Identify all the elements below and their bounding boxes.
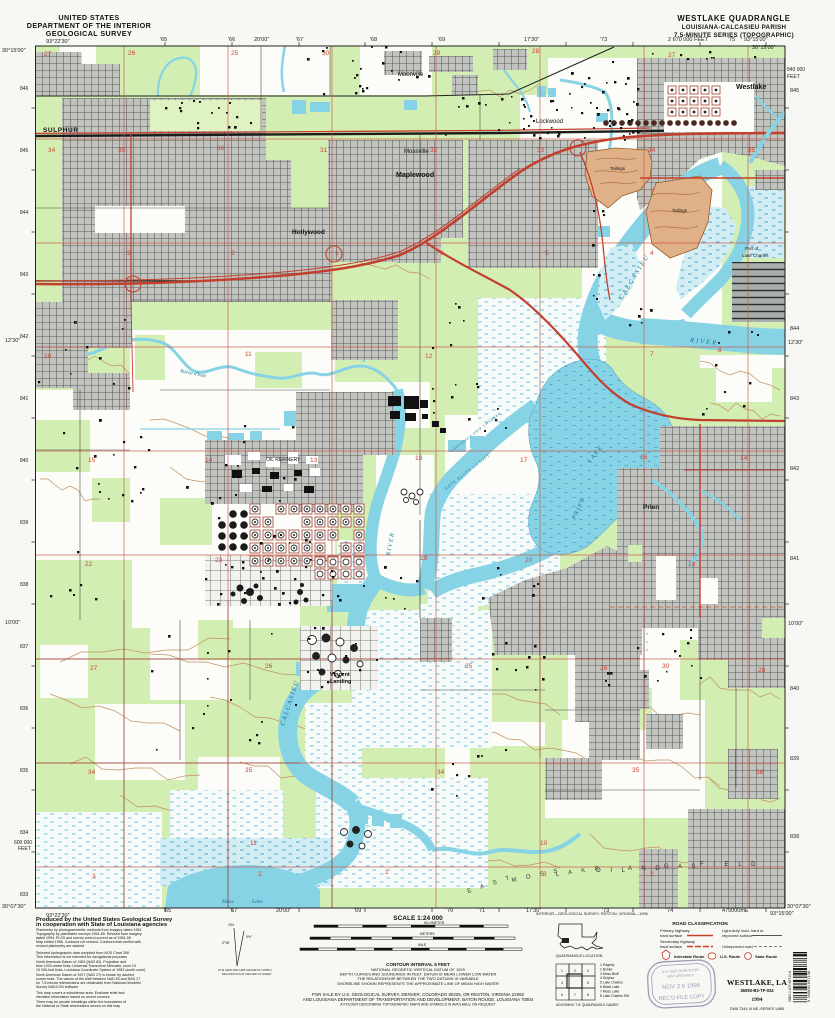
svg-text:8 Lake Charles SW: 8 Lake Charles SW [600, 994, 630, 998]
svg-text:Landing: Landing [330, 679, 351, 685]
svg-text:2: 2 [258, 871, 262, 878]
svg-text:32: 32 [430, 147, 438, 154]
svg-text:844: 844 [790, 326, 799, 332]
svg-text:Tailings: Tailings [610, 166, 626, 171]
svg-text:Lake: Lake [251, 899, 263, 905]
svg-text:2: 2 [231, 250, 235, 257]
svg-text:3: 3 [587, 969, 589, 973]
svg-text:28: 28 [532, 48, 540, 55]
svg-text:11: 11 [250, 840, 257, 847]
svg-text:ADJOINING 7.5′ QUADRANGLE NAME: ADJOINING 7.5′ QUADRANGLE NAMES [556, 1003, 619, 1007]
svg-text:844: 844 [20, 210, 29, 216]
svg-text:′69: ′69 [354, 908, 361, 914]
svg-text:Moonville: Moonville [398, 72, 424, 78]
svg-text:′67: ′67 [230, 908, 237, 914]
svg-text:Vincent: Vincent [330, 672, 350, 678]
svg-text:′67: ′67 [296, 37, 303, 43]
svg-text:36: 36 [217, 145, 225, 152]
svg-text:840 000: 840 000 [787, 67, 805, 73]
svg-text:25: 25 [465, 663, 473, 670]
svg-text:O I L: O I L [596, 868, 629, 874]
svg-text:ISBN 0-607-65710-8: ISBN 0-607-65710-8 [788, 971, 792, 1002]
svg-text:845: 845 [20, 148, 29, 154]
svg-text:14: 14 [740, 455, 748, 462]
svg-text:4: 4 [561, 981, 563, 985]
svg-text:845: 845 [790, 88, 799, 94]
svg-text:12: 12 [425, 353, 433, 360]
svg-text:Mossville: Mossville [404, 149, 429, 155]
svg-text:FEET: FEET [18, 846, 31, 852]
svg-text:A N D: A N D [628, 866, 664, 872]
svg-text:Tailings: Tailings [672, 208, 688, 213]
svg-text:FEET: FEET [787, 74, 800, 80]
svg-text:7: 7 [650, 351, 654, 358]
svg-text:Lockwood: Lockwood [536, 119, 563, 125]
svg-text:Unimproved road: Unimproved road [722, 944, 753, 949]
svg-text:837: 837 [20, 644, 29, 650]
svg-text:2 Buhler: 2 Buhler [600, 967, 613, 971]
svg-text:30°15′00″: 30°15′00″ [752, 45, 776, 51]
svg-text:′66: ′66 [228, 37, 235, 43]
svg-text:A FOLDER DESCRIBING TOPOGRAPHI: A FOLDER DESCRIBING TOPOGRAPHIC MAPS AND… [340, 1002, 496, 1006]
svg-text:93°15′00″: 93°15′00″ [744, 37, 768, 43]
svg-text:ROAD CLASSIFICATION: ROAD CLASSIFICATION [672, 921, 728, 927]
svg-text:93°22′30″: 93°22′30″ [46, 39, 70, 45]
svg-text:20′00″: 20′00″ [276, 908, 291, 914]
svg-text:Prien: Prien [643, 504, 659, 511]
svg-text:33: 33 [537, 147, 545, 154]
svg-text:10 000-foot ticks: Louisiana C: 10 000-foot ticks: Louisiana Coordinate … [36, 968, 145, 972]
svg-text:7 Moss Lake: 7 Moss Lake [600, 989, 619, 993]
svg-text:MILE: MILE [418, 943, 427, 947]
svg-text:36093-B3-TF-024: 36093-B3-TF-024 [740, 988, 774, 993]
svg-text:846: 846 [20, 86, 29, 92]
svg-text:475000mE: 475000mE [722, 908, 749, 914]
svg-text:35: 35 [748, 147, 756, 154]
svg-text:29: 29 [433, 50, 441, 57]
svg-text:835: 835 [20, 768, 29, 774]
svg-text:23: 23 [215, 557, 223, 564]
svg-text:Port of: Port of [745, 246, 759, 251]
svg-text:93°15′00″: 93°15′00″ [770, 911, 794, 917]
svg-text:WESTLAKE, LA: WESTLAKE, LA [727, 978, 788, 987]
svg-text:18: 18 [415, 455, 423, 462]
svg-text:′74: ′74 [666, 908, 673, 914]
svg-text:27: 27 [668, 52, 676, 59]
svg-text:1: 1 [561, 969, 563, 973]
svg-text:10′00″: 10′00″ [788, 621, 803, 627]
svg-text:19: 19 [688, 561, 696, 568]
svg-text:834: 834 [20, 830, 29, 836]
svg-text:34: 34 [88, 769, 96, 776]
svg-text:the National or State reservat: the National or State reservations shown… [36, 1004, 120, 1008]
svg-text:elevation information based on: elevation information based on recent so… [36, 995, 110, 999]
svg-text:2: 2 [574, 969, 576, 973]
svg-text:843: 843 [790, 396, 799, 402]
svg-text:DECLINATION AT CENTER OF SHEET: DECLINATION AT CENTER OF SHEET [222, 972, 272, 976]
svg-text:842: 842 [790, 466, 799, 472]
svg-text:6: 6 [440, 250, 444, 257]
svg-text:842: 842 [20, 334, 29, 340]
svg-text:27: 27 [90, 665, 98, 672]
svg-text:35: 35 [118, 147, 126, 154]
svg-text:34: 34 [48, 147, 56, 154]
svg-text:30°07′30″: 30°07′30″ [787, 904, 811, 910]
svg-text:′68: ′68 [370, 37, 377, 43]
svg-text:1: 1 [335, 250, 339, 257]
svg-text:1 Edgerly: 1 Edgerly [600, 963, 615, 967]
svg-text:35: 35 [632, 767, 640, 774]
svg-text:833: 833 [20, 892, 29, 898]
svg-text:34: 34 [437, 769, 445, 776]
svg-text:15: 15 [88, 457, 96, 464]
svg-text:′75: ′75 [728, 37, 735, 43]
svg-text:10: 10 [540, 840, 548, 847]
svg-text:4 Sulphur: 4 Sulphur [600, 976, 615, 980]
svg-text:INTERIOR—GEOLOGICAL SURVEY, RE: INTERIOR—GEOLOGICAL SURVEY, RESTON, VIRG… [536, 912, 648, 916]
svg-text:3: 3 [127, 250, 131, 257]
svg-text:3 Moss Bluff: 3 Moss Bluff [600, 972, 619, 976]
svg-text:′65: ′65 [164, 908, 171, 914]
svg-text:2: 2 [650, 871, 654, 878]
svg-text:28: 28 [758, 667, 766, 674]
svg-text:Westlake: Westlake [736, 84, 766, 91]
svg-text:LOUISIANA-CALCASIEU PARISH: LOUISIANA-CALCASIEU PARISH [682, 24, 787, 31]
svg-text:19: 19 [420, 555, 428, 562]
svg-text:′70: ′70 [446, 908, 453, 914]
svg-text:8: 8 [718, 347, 722, 354]
svg-text:Hollywood: Hollywood [292, 229, 325, 236]
svg-text:35: 35 [245, 767, 253, 774]
svg-text:25: 25 [231, 50, 239, 57]
svg-text:′71: ′71 [478, 908, 485, 914]
svg-text:improved surface: improved surface [722, 933, 753, 938]
svg-text:Maplewood: Maplewood [396, 172, 434, 179]
svg-text:16: 16 [640, 454, 648, 461]
svg-text:U.S. Route: U.S. Route [720, 954, 741, 959]
svg-text:13: 13 [310, 457, 318, 464]
svg-text:Survey NADCON software: Survey NADCON software [36, 985, 78, 989]
svg-text:841: 841 [790, 556, 799, 562]
svg-text:GN: GN [228, 922, 234, 927]
svg-text:27: 27 [44, 51, 52, 58]
svg-text:′65: ′65 [160, 37, 167, 43]
svg-text:26: 26 [265, 663, 273, 670]
svg-text:4: 4 [650, 250, 654, 257]
svg-text:5 Lake Charles: 5 Lake Charles [600, 981, 623, 985]
svg-text:Lake Charles: Lake Charles [742, 253, 769, 258]
svg-text:Interstate Route: Interstate Route [674, 954, 705, 959]
svg-text:1994: 1994 [752, 997, 763, 1003]
svg-text:839: 839 [790, 756, 799, 762]
svg-text:12′30″: 12′30″ [788, 340, 803, 346]
svg-text:6: 6 [561, 993, 563, 997]
svg-text:5: 5 [545, 250, 549, 257]
svg-text:hard surface: hard surface [660, 944, 683, 949]
svg-text:SULPHUR: SULPHUR [43, 127, 79, 134]
svg-text:14: 14 [205, 457, 213, 464]
svg-text:20: 20 [525, 557, 533, 564]
svg-text:840: 840 [790, 686, 799, 692]
svg-text:841: 841 [20, 396, 29, 402]
svg-text:0°06′: 0°06′ [222, 941, 230, 945]
svg-text:F I E L D: F I E L D [700, 862, 759, 868]
svg-text:5: 5 [587, 981, 589, 985]
svg-text:′73: ′73 [600, 37, 607, 43]
svg-text:′69: ′69 [438, 37, 445, 43]
svg-text:838: 838 [790, 834, 799, 840]
svg-text:AND LOUISIANA DEPARTMENT OF TR: AND LOUISIANA DEPARTMENT OF TRANSPORTATI… [303, 997, 534, 1002]
svg-text:840: 840 [20, 458, 29, 464]
svg-text:10: 10 [44, 353, 52, 360]
svg-text:This information is not intend: This information is not intended for nav… [36, 955, 127, 959]
svg-text:6 Black Lake: 6 Black Lake [600, 985, 620, 989]
svg-text:G A S: G A S [664, 864, 699, 870]
svg-text:26: 26 [128, 50, 136, 57]
svg-text:12′30″: 12′30″ [5, 338, 20, 344]
svg-text:revised planimetry are dashed: revised planimetry are dashed [36, 944, 84, 948]
svg-text:OIL REFINERY: OIL REFINERY [266, 457, 301, 463]
svg-text:SHORELINE SHOWN REPRESENTS THE: SHORELINE SHOWN REPRESENTS THE APPROXIMA… [337, 981, 499, 986]
svg-text:30°07′30″: 30°07′30″ [2, 904, 26, 910]
svg-text:838: 838 [20, 582, 29, 588]
svg-text:839: 839 [20, 520, 29, 526]
svg-text:7: 7 [574, 993, 576, 997]
svg-text:State Route: State Route [755, 954, 778, 959]
svg-text:3: 3 [92, 873, 96, 880]
svg-text:836: 836 [20, 706, 29, 712]
svg-text:WESTLAKE QUADRANGLE: WESTLAKE QUADRANGLE [677, 14, 790, 23]
svg-text:30: 30 [662, 663, 670, 670]
svg-text:11: 11 [245, 351, 252, 358]
svg-text:2 670 000 FEET: 2 670 000 FEET [668, 37, 709, 43]
svg-text:30°15′00″: 30°15′00″ [2, 48, 26, 54]
svg-text:Moss: Moss [221, 899, 234, 905]
svg-text:20′00″: 20′00″ [254, 37, 269, 43]
svg-text:26: 26 [600, 665, 608, 672]
svg-text:36: 36 [756, 769, 764, 776]
svg-text:1: 1 [385, 869, 389, 876]
svg-text:METERS: METERS [420, 932, 435, 936]
svg-text:GEOLOGICAL SURVEY: GEOLOGICAL SURVEY [46, 29, 132, 38]
svg-text:17′30″: 17′30″ [524, 37, 539, 43]
svg-text:31: 31 [320, 147, 328, 154]
svg-text:10′00″: 10′00″ [5, 620, 20, 626]
svg-text:34: 34 [648, 147, 656, 154]
svg-text:22: 22 [85, 561, 93, 568]
svg-text:8: 8 [587, 993, 589, 997]
svg-text:KILOMETER: KILOMETER [424, 921, 445, 925]
svg-text:DMA 7344 III NE–SERIES V885: DMA 7344 III NE–SERIES V885 [730, 1007, 784, 1011]
svg-text:QUADRANGLE LOCATION: QUADRANGLE LOCATION [556, 954, 603, 958]
svg-text:9 780600 657108: 9 780600 657108 [806, 970, 811, 1002]
svg-text:hard surface: hard surface [660, 933, 683, 938]
svg-text:17: 17 [520, 457, 528, 464]
svg-text:5½°: 5½° [246, 935, 253, 939]
svg-text:843: 843 [20, 272, 29, 278]
